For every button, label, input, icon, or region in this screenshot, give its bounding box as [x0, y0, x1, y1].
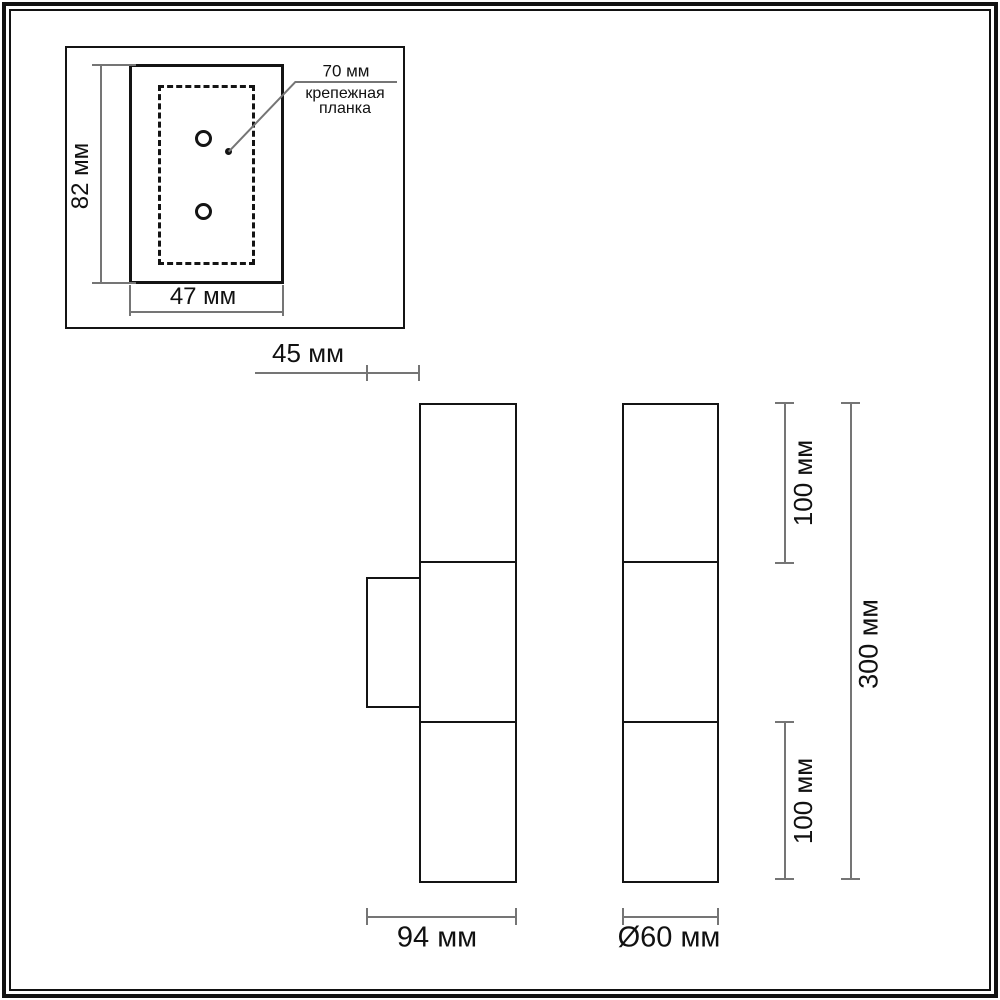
bracket-name-line2: планка	[305, 101, 384, 116]
wall-offset-label: 45 мм	[272, 340, 344, 366]
front-view-body	[622, 403, 719, 883]
side-view-body	[419, 403, 517, 883]
diameter-label: Ø60 мм	[618, 924, 721, 953]
dim-60-line	[622, 916, 719, 918]
overall-height-label: 300 мм	[856, 599, 883, 689]
dim-100-bottom-tick-lower	[775, 878, 794, 880]
dim-82-line	[100, 65, 102, 283]
dim-45-tick-right	[418, 365, 420, 381]
front-view-divider-bottom	[622, 721, 719, 723]
dim-45-line	[255, 372, 420, 374]
dim-45-tick-left	[366, 365, 368, 381]
dim-82-tick-top	[92, 64, 136, 66]
dim-100-top-line	[784, 403, 786, 563]
lower-shade-label: 100 мм	[790, 758, 816, 844]
leader-underline	[295, 81, 397, 83]
dim-94-tick-right	[515, 908, 517, 925]
dim-300-line	[850, 403, 852, 880]
plate-width-label: 47 мм	[170, 285, 236, 309]
dim-94-line	[366, 916, 517, 918]
mount-bracket-dashed-outline	[158, 85, 255, 265]
upper-shade-label: 100 мм	[790, 440, 816, 526]
bracket-name-label: крепежная планка	[305, 86, 384, 116]
depth-label: 94 мм	[397, 924, 477, 953]
dim-300-tick-upper	[841, 402, 860, 404]
dimension-drawing: 70 мм крепежная планка 82 мм 47 мм 45 мм…	[0, 0, 1000, 1000]
mount-hole-top	[195, 130, 212, 147]
dim-82-tick-bottom	[92, 282, 136, 284]
side-view-wall-bracket	[366, 577, 421, 708]
plate-height-label: 82 мм	[69, 143, 93, 209]
dim-100-top-tick-lower	[775, 562, 794, 564]
dim-100-bottom-line	[784, 722, 786, 880]
front-view-divider-top	[622, 561, 719, 563]
dim-94-tick-left	[366, 908, 368, 925]
dim-100-top-tick-upper	[775, 402, 794, 404]
bracket-name-line1: крепежная	[305, 86, 384, 101]
bracket-dim-label: 70 мм	[322, 63, 369, 80]
side-view-divider-top	[419, 561, 517, 563]
dim-300-tick-lower	[841, 878, 860, 880]
mount-hole-bottom	[195, 203, 212, 220]
dim-100-bottom-tick-upper	[775, 721, 794, 723]
side-view-divider-bottom	[419, 721, 517, 723]
dim-47-line	[129, 311, 283, 313]
